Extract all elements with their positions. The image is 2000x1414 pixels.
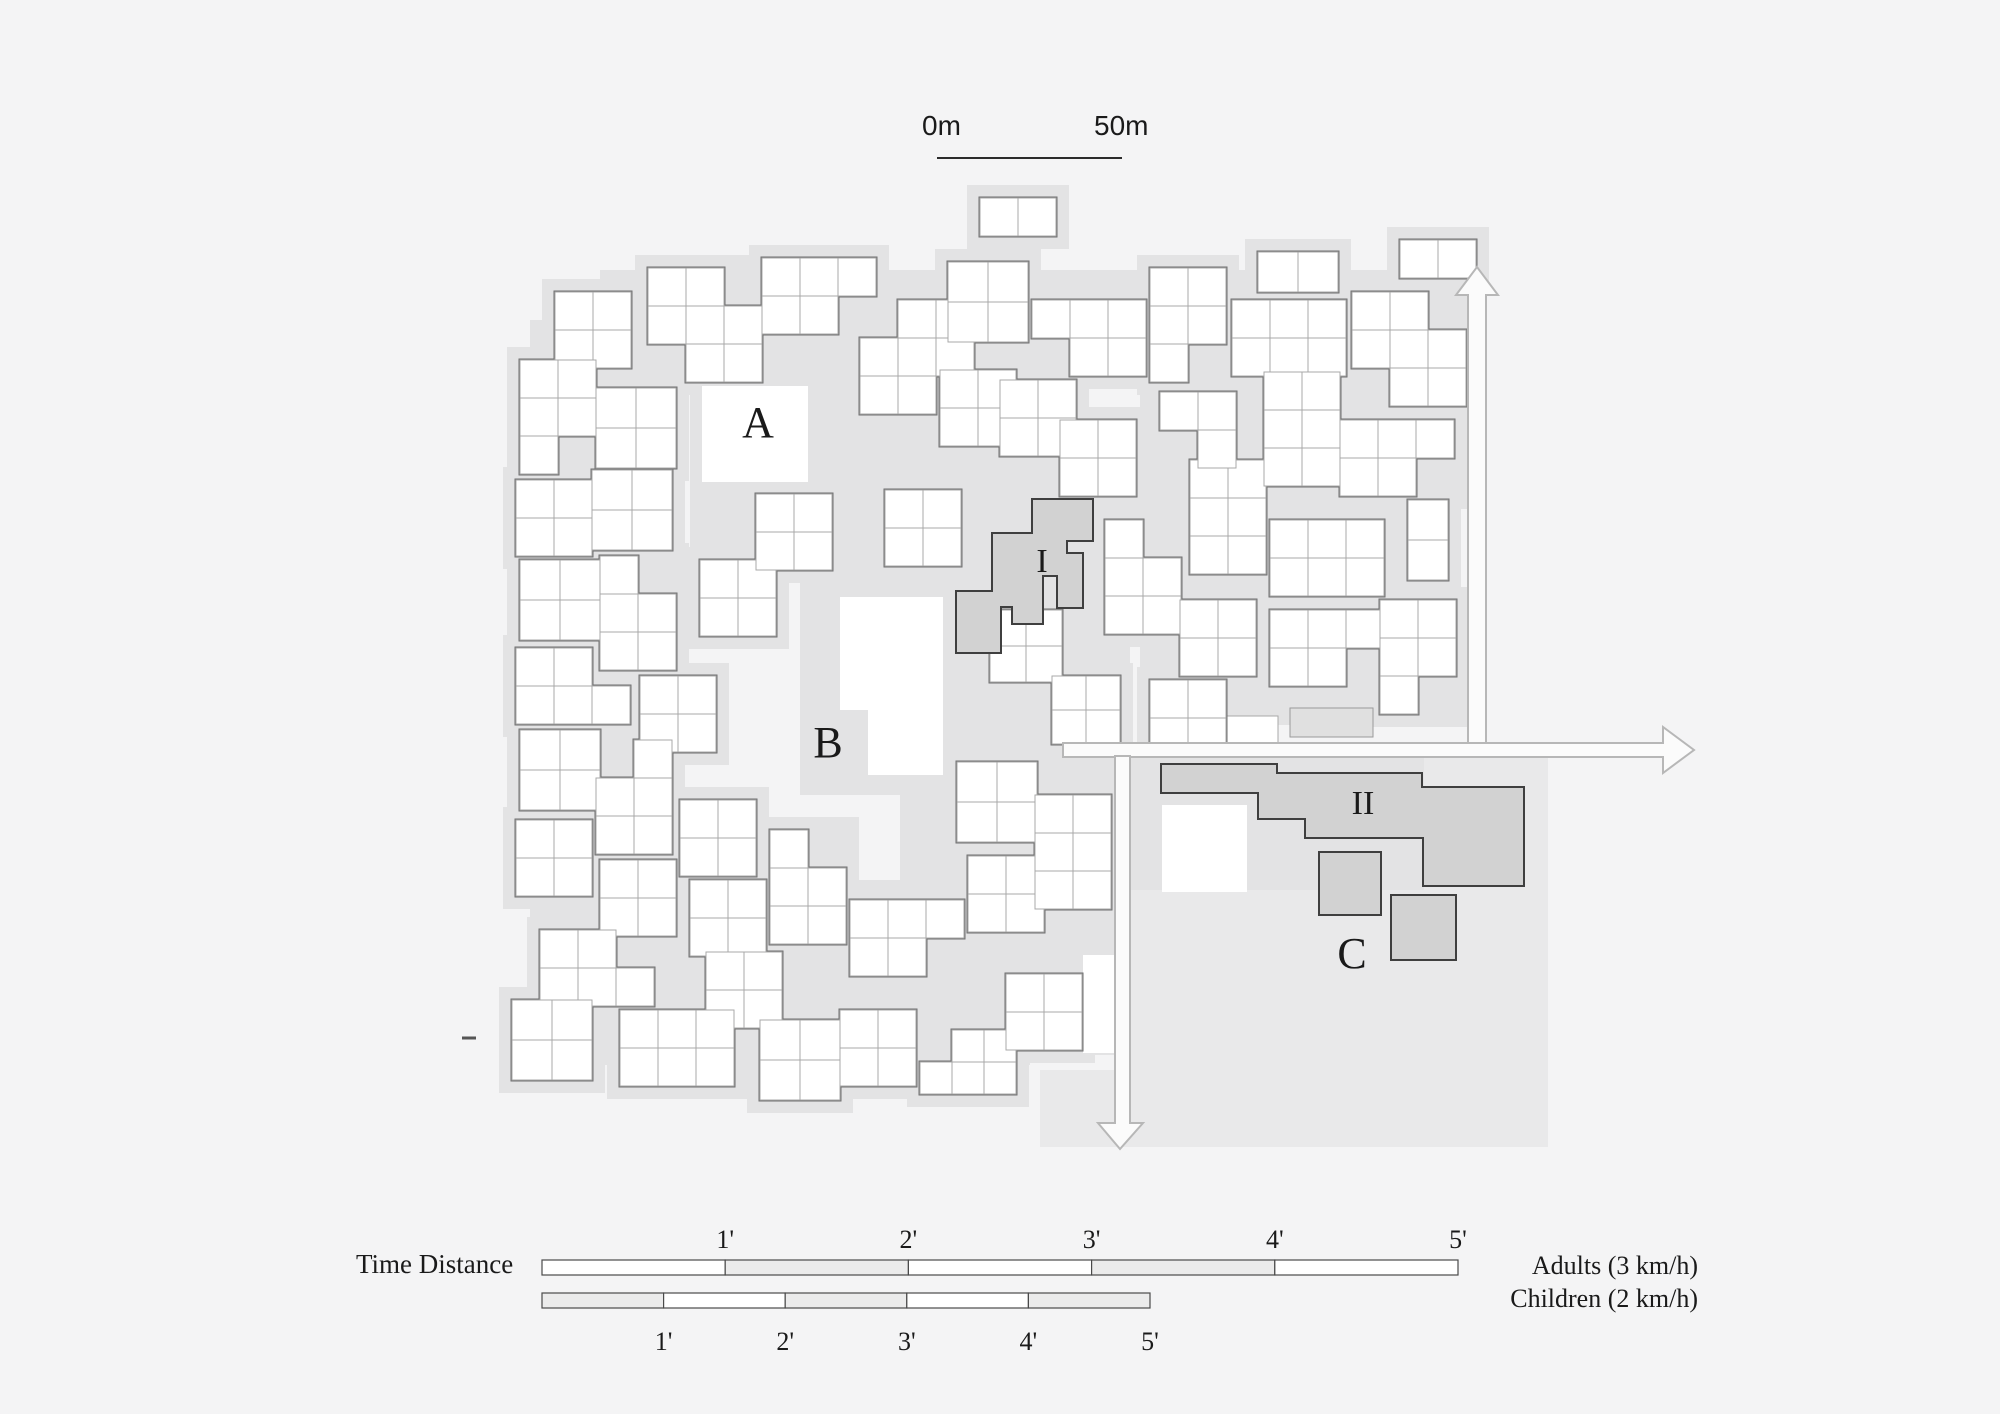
building-cell	[1408, 540, 1448, 580]
building-cell	[592, 510, 632, 550]
building-cell	[696, 1048, 734, 1086]
building-cell	[552, 1040, 592, 1080]
building-cell	[1188, 680, 1226, 718]
plaza	[1083, 955, 1115, 1053]
plan-label-A: A	[742, 398, 774, 447]
building-cell	[1308, 520, 1346, 558]
building-cell	[634, 778, 672, 816]
legend-bar-segment-adults	[542, 1260, 725, 1275]
building-cell	[940, 408, 978, 446]
plan-label-B: B	[813, 718, 842, 767]
building-cell	[1218, 600, 1256, 638]
building-cell	[770, 868, 808, 906]
building-cell	[1302, 448, 1340, 486]
building-cell	[838, 258, 876, 296]
building-cell	[1352, 330, 1390, 368]
building-cell	[1188, 268, 1226, 306]
building-cell	[555, 292, 593, 330]
building-cell	[800, 258, 838, 296]
building-cell	[1308, 558, 1346, 596]
building-cell	[1098, 420, 1136, 458]
building-cell	[762, 296, 800, 334]
building-cell	[686, 306, 724, 344]
building-cell	[1258, 252, 1298, 292]
building-cell	[600, 860, 638, 898]
building-cell	[1418, 600, 1456, 638]
building-cell	[520, 436, 558, 474]
building-cell	[1302, 372, 1340, 410]
legend-bar-segment-children	[785, 1293, 907, 1308]
building-cell	[1044, 974, 1082, 1012]
building-cell	[1390, 330, 1428, 368]
legend-children-label: Children (2 km/h)	[1398, 1284, 1698, 1314]
building-cell	[728, 918, 766, 956]
site-plan-svg: ABCIII1'2'3'4'5'1'2'3'4'5'	[0, 0, 2000, 1414]
building-cell	[1346, 520, 1384, 558]
building-cell	[1160, 392, 1198, 430]
plan-label-II: II	[1352, 785, 1375, 822]
building-cell	[512, 1040, 552, 1080]
legend-tick-label-adults: 1'	[716, 1225, 734, 1254]
building-cell	[1270, 610, 1308, 648]
building-cell	[923, 528, 961, 566]
building-cell	[1150, 680, 1188, 718]
building-cell	[1308, 648, 1346, 686]
building-cell	[1428, 368, 1466, 406]
building-cell	[620, 1010, 658, 1048]
building-cell	[700, 560, 738, 598]
building-cell	[1270, 558, 1308, 596]
building-cell	[592, 470, 632, 510]
building-cell	[696, 1010, 734, 1048]
building-cell	[1438, 240, 1476, 278]
building-cell	[1270, 648, 1308, 686]
building-cell	[1006, 974, 1044, 1012]
building-cell	[596, 778, 634, 816]
building-cell	[808, 906, 846, 944]
building-cell	[1380, 638, 1418, 676]
building-cell	[770, 906, 808, 944]
building-cell	[898, 300, 936, 338]
building-cell	[1378, 458, 1416, 496]
building-cell	[997, 802, 1037, 842]
building-cell	[700, 598, 738, 636]
building-cell	[1086, 676, 1120, 710]
building-cell	[520, 398, 558, 436]
building-cell	[1038, 380, 1076, 418]
building-cell	[800, 1060, 840, 1100]
building-cell	[640, 676, 678, 714]
building-cell	[638, 860, 676, 898]
building-cell	[1228, 498, 1266, 536]
slab-building	[1290, 708, 1373, 737]
legend-bar-segment-children	[664, 1293, 786, 1308]
building-cell	[560, 770, 600, 810]
building-cell	[1070, 338, 1108, 376]
building-cell	[923, 490, 961, 528]
building-cell	[860, 338, 898, 376]
building-cell	[632, 470, 672, 510]
building-cell	[1086, 710, 1120, 744]
building-cell	[1390, 368, 1428, 406]
building-cell	[1298, 252, 1338, 292]
building-cell	[690, 918, 728, 956]
building-cell	[756, 494, 794, 532]
building-cell	[957, 802, 997, 842]
building-cell	[984, 1062, 1016, 1094]
building-cell	[885, 490, 923, 528]
building-cell	[690, 880, 728, 918]
building-cell	[940, 370, 978, 408]
building-cell	[600, 556, 638, 594]
building-cell	[1390, 292, 1428, 330]
building-cell	[560, 730, 600, 770]
building-cell	[878, 1010, 916, 1048]
building-cell	[1006, 1012, 1044, 1050]
building-cell	[516, 686, 554, 724]
legend-tick-label-adults: 3'	[1083, 1225, 1101, 1254]
building-cell	[560, 560, 600, 600]
building-cell	[686, 344, 724, 382]
building-cell	[600, 594, 638, 632]
scale-label-start: 0m	[922, 110, 961, 142]
building-cell	[878, 1048, 916, 1086]
building-cell	[516, 820, 554, 858]
building-cell	[1150, 306, 1188, 344]
building-cell	[648, 306, 686, 344]
building-cell	[1270, 338, 1308, 376]
building-cell	[728, 880, 766, 918]
building-cell	[997, 762, 1037, 802]
building-cell	[1218, 638, 1256, 676]
building-cell	[718, 800, 756, 838]
building-cell	[638, 594, 676, 632]
building-cell	[1270, 520, 1308, 558]
building-cell	[706, 952, 744, 990]
building-cell	[516, 858, 554, 896]
building-cell	[1105, 558, 1143, 596]
legend-tick-label-children: 3'	[898, 1327, 916, 1356]
building-cell	[952, 1062, 984, 1094]
building-cell	[1035, 833, 1073, 871]
building-cell	[520, 360, 558, 398]
building-cell	[593, 292, 631, 330]
building-cell	[1108, 338, 1146, 376]
building-cell	[1180, 600, 1218, 638]
building-cell	[1302, 410, 1340, 448]
building-cell	[1070, 300, 1108, 338]
building-cell	[1270, 300, 1308, 338]
building-cell	[554, 686, 592, 724]
building-cell	[1052, 710, 1086, 744]
special-building-C-square-2	[1391, 895, 1456, 960]
building-cell	[512, 1000, 552, 1040]
building-cell	[1198, 430, 1236, 468]
building-cell	[1073, 833, 1111, 871]
building-cell	[760, 1060, 800, 1100]
building-cell	[680, 838, 718, 876]
building-cell	[1190, 536, 1228, 574]
legend-tick-label-children: 4'	[1020, 1327, 1038, 1356]
building-cell	[1143, 596, 1181, 634]
building-cell	[516, 648, 554, 686]
building-cell	[1232, 300, 1270, 338]
building-cell	[840, 1048, 878, 1086]
building-cell	[658, 1048, 696, 1086]
building-cell	[1000, 380, 1038, 418]
building-cell	[520, 770, 560, 810]
building-cell	[1408, 500, 1448, 540]
legend-bar-segment-children	[1028, 1293, 1150, 1308]
building-cell	[1018, 198, 1056, 236]
legend-bar-segment-adults	[1092, 1260, 1275, 1275]
building-cell	[520, 730, 560, 770]
building-cell	[554, 820, 592, 858]
building-cell	[593, 330, 631, 368]
building-cell	[648, 268, 686, 306]
building-cell	[558, 360, 596, 398]
open-area-c	[1040, 1070, 1150, 1147]
building-cell	[560, 600, 600, 640]
building-cell	[968, 894, 1006, 932]
building-cell	[1308, 610, 1346, 648]
building-cell	[636, 388, 676, 428]
building-cell	[1108, 300, 1146, 338]
building-cell	[1060, 420, 1098, 458]
legend-tick-label-adults: 5'	[1449, 1225, 1467, 1254]
building-cell	[592, 686, 630, 724]
building-cell	[554, 480, 592, 518]
building-cell	[1428, 330, 1466, 368]
building-cell	[1340, 458, 1378, 496]
building-cell	[898, 376, 936, 414]
building-cell	[800, 1020, 840, 1060]
building-cell	[952, 1030, 984, 1062]
building-cell	[1150, 268, 1188, 306]
building-cell	[1346, 558, 1384, 596]
building-cell	[616, 968, 654, 1006]
building-cell	[554, 648, 592, 686]
building-cell	[1198, 392, 1236, 430]
building-cell	[1308, 338, 1346, 376]
legend-title: Time Distance	[356, 1249, 513, 1280]
building-cell	[596, 428, 636, 468]
building-cell	[558, 398, 596, 436]
legend-bar-segment-adults	[908, 1260, 1091, 1275]
building-cell	[926, 900, 964, 938]
building-cell	[760, 1020, 800, 1060]
building-cell	[1035, 795, 1073, 833]
building-cell	[516, 518, 554, 556]
building-cell	[948, 302, 988, 342]
building-cell	[520, 560, 560, 600]
building-cell	[578, 930, 616, 968]
building-cell	[1000, 418, 1038, 456]
building-cell	[554, 518, 592, 556]
building-cell	[1052, 676, 1086, 710]
building-cell	[1308, 300, 1346, 338]
legend-tick-label-adults: 2'	[900, 1225, 918, 1254]
building-cell	[678, 714, 716, 752]
building-cell	[1228, 536, 1266, 574]
building-cell	[1044, 1012, 1082, 1050]
plan-label-C: C	[1337, 929, 1366, 978]
building-cell	[1418, 638, 1456, 676]
legend-tick-label-children: 1'	[655, 1327, 673, 1356]
building-cell	[840, 1010, 878, 1048]
building-cell	[540, 930, 578, 968]
building-cell	[762, 258, 800, 296]
building-cell	[638, 898, 676, 936]
building-cell	[1264, 372, 1302, 410]
building-cell	[794, 494, 832, 532]
building-cell	[885, 528, 923, 566]
building-cell	[620, 1048, 658, 1086]
building-cell	[632, 510, 672, 550]
building-cell	[948, 262, 988, 302]
building-cell	[638, 632, 676, 670]
legend-bar-segment-children	[907, 1293, 1029, 1308]
building-cell	[1232, 338, 1270, 376]
building-cell	[680, 800, 718, 838]
building-cell	[800, 296, 838, 334]
building-cell	[600, 632, 638, 670]
building-cell	[658, 1010, 696, 1048]
building-cell	[1098, 458, 1136, 496]
building-cell	[968, 856, 1006, 894]
building-cell	[634, 740, 672, 778]
building-cell	[596, 816, 634, 854]
building-cell	[756, 532, 794, 570]
building-cell	[888, 900, 926, 938]
building-cell	[1264, 448, 1302, 486]
building-cell	[1400, 240, 1438, 278]
building-cell	[1190, 498, 1228, 536]
legend-tick-label-children: 2'	[776, 1327, 794, 1356]
building-cell	[724, 344, 762, 382]
building-cell	[1380, 600, 1418, 638]
building-cell	[1378, 420, 1416, 458]
building-cell	[808, 868, 846, 906]
building-cell	[1180, 638, 1218, 676]
building-cell	[794, 532, 832, 570]
building-cell	[1346, 610, 1384, 648]
building-cell	[898, 338, 936, 376]
plan-label-I: I	[1036, 543, 1047, 580]
building-cell	[744, 952, 782, 990]
building-cell	[1352, 292, 1390, 330]
legend-bar-segment-adults	[725, 1260, 908, 1275]
building-cell	[1060, 458, 1098, 496]
building-cell	[678, 676, 716, 714]
legend-tick-label-children: 5'	[1141, 1327, 1159, 1356]
building-cell	[1416, 420, 1454, 458]
legend-adults-label: Adults (3 km/h)	[1398, 1251, 1698, 1281]
building-cell	[988, 302, 1028, 342]
building-cell	[770, 830, 808, 868]
building-cell	[860, 376, 898, 414]
building-cell	[920, 1062, 952, 1094]
building-cell	[552, 1000, 592, 1040]
building-cell	[1150, 344, 1188, 382]
building-cell	[636, 428, 676, 468]
building-cell	[888, 938, 926, 976]
building-cell	[1105, 596, 1143, 634]
building-cell	[1380, 676, 1418, 714]
building-cell	[1035, 871, 1073, 909]
building-cell	[1032, 300, 1070, 338]
building-cell	[1340, 420, 1378, 458]
building-cell	[988, 262, 1028, 302]
building-cell	[724, 306, 762, 344]
building-cell	[516, 480, 554, 518]
special-building-C-square-1	[1319, 852, 1381, 915]
building-cell	[686, 268, 724, 306]
building-cell	[520, 600, 560, 640]
building-cell	[554, 858, 592, 896]
building-cell	[850, 900, 888, 938]
building-cell	[738, 598, 776, 636]
legend-tick-label-adults: 4'	[1266, 1225, 1284, 1254]
legend-bar-segment-children	[542, 1293, 664, 1308]
building-cell	[957, 762, 997, 802]
building-cell	[1188, 306, 1226, 344]
scale-label-end: 50m	[1094, 110, 1148, 142]
building-cell	[980, 198, 1018, 236]
building-cell	[850, 938, 888, 976]
building-cell	[1264, 410, 1302, 448]
building-cell	[718, 838, 756, 876]
building-cell	[1073, 795, 1111, 833]
site-plan-figure: ABCIII1'2'3'4'5'1'2'3'4'5' 0m 50m Time D…	[0, 0, 2000, 1414]
building-cell	[596, 388, 636, 428]
building-cell	[1143, 558, 1181, 596]
building-cell	[1105, 520, 1143, 558]
plaza	[1162, 805, 1247, 892]
building-cell	[634, 816, 672, 854]
building-cell	[1073, 871, 1111, 909]
